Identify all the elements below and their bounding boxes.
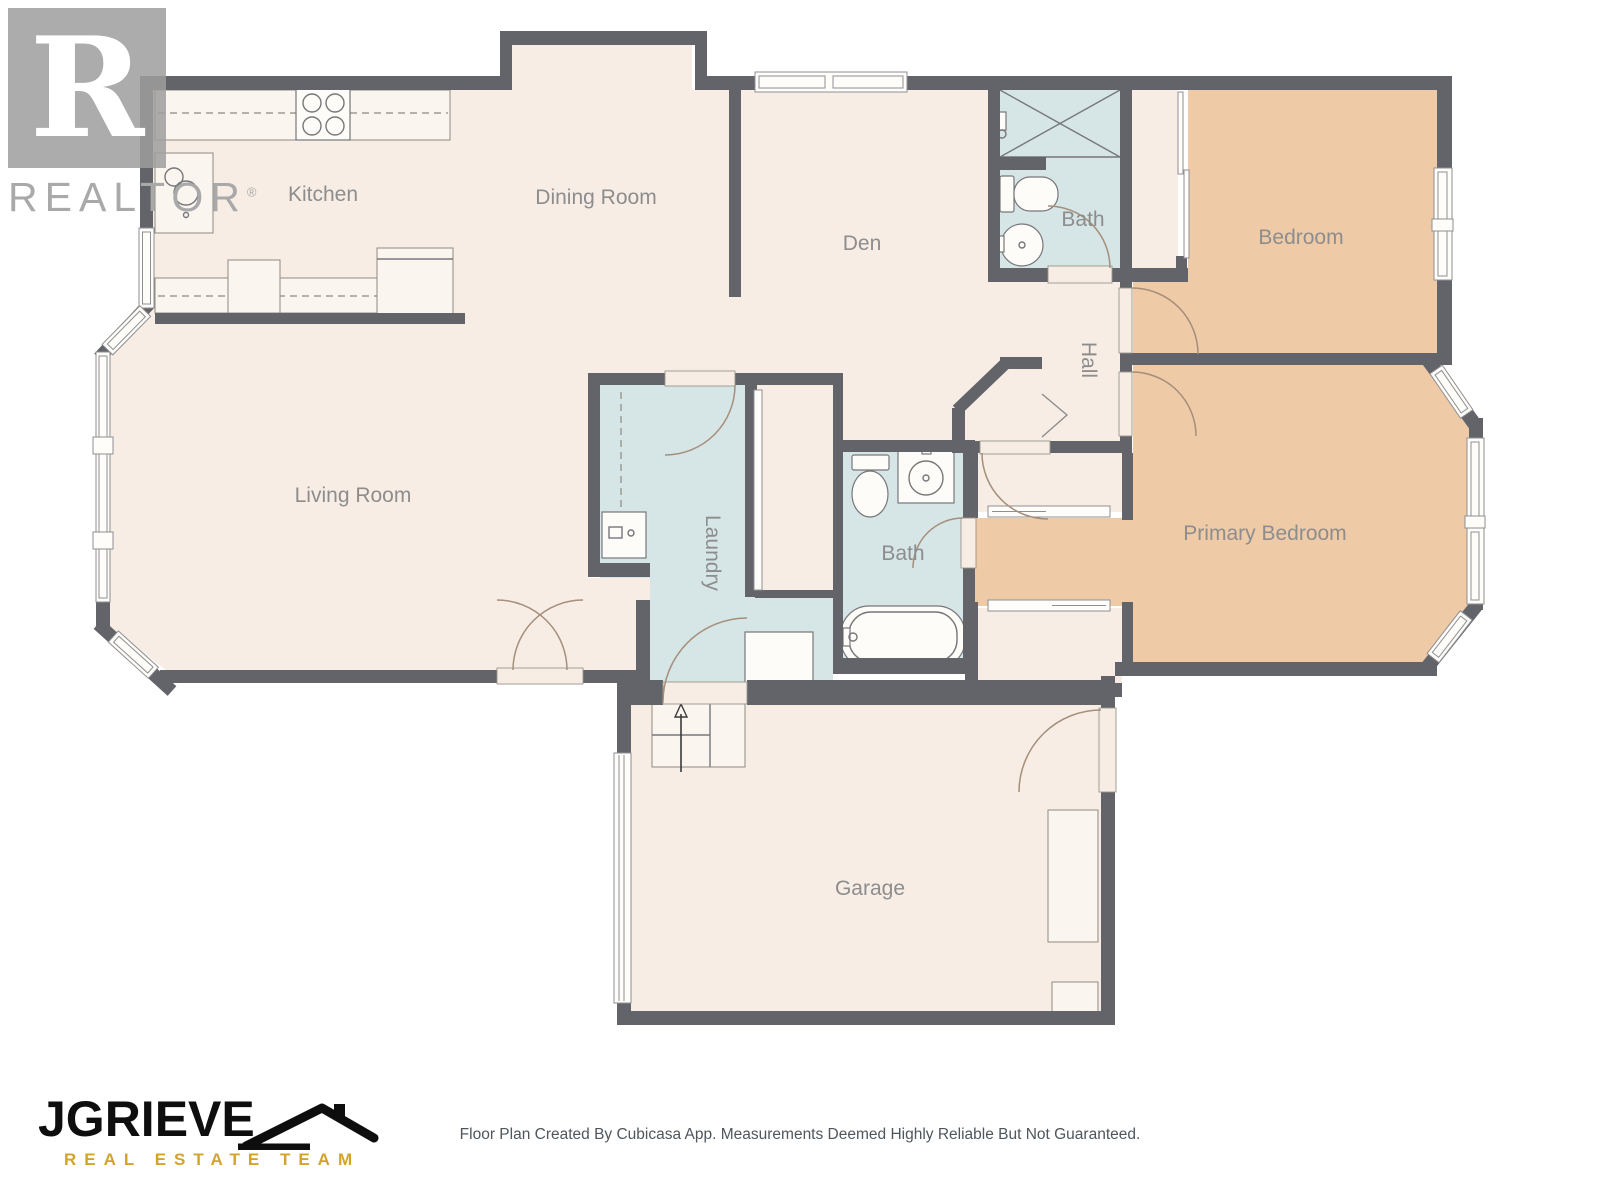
window-living-left <box>93 352 113 602</box>
stove-icon <box>296 88 350 140</box>
bedroom-closet-slider <box>1184 170 1189 258</box>
window-den-top <box>755 72 907 92</box>
bedroom-closet-floor <box>1132 90 1178 270</box>
primary-corridor-floor <box>975 518 1133 606</box>
laundry-garage-door-sill <box>663 682 747 704</box>
garage-side-door-sill <box>1099 708 1116 792</box>
bedroom-door-sill <box>1119 288 1132 353</box>
garage-shelf <box>1048 810 1098 942</box>
laundry-top-door-sill <box>665 371 735 386</box>
room-label-garage: Garage <box>835 877 905 900</box>
room-label-primary-bedroom: Primary Bedroom <box>1183 522 1346 545</box>
realtor-logo: R REALTOR® <box>8 8 208 221</box>
kitchen-island-box <box>228 260 280 313</box>
primary-door-sill <box>1119 372 1132 436</box>
room-label-living-room: Living Room <box>295 484 412 507</box>
realtor-wordmark-text: REALTOR <box>8 174 247 220</box>
room-label-den: Den <box>843 232 882 255</box>
stairs-icon <box>652 703 745 772</box>
disclaimer-text: Floor Plan Created By Cubicasa App. Meas… <box>0 1126 1600 1144</box>
window-kitchen-left <box>139 228 154 308</box>
window-bedroom-right <box>1432 168 1453 280</box>
fridge-icon <box>377 248 453 314</box>
hall-closet-slider <box>754 390 762 590</box>
room-label-dining-room: Dining Room <box>535 186 656 209</box>
room-label-kitchen: Kitchen <box>288 183 358 206</box>
bath-upper-door-sill <box>1048 266 1112 283</box>
realtor-logo-square: R <box>8 8 166 168</box>
front-door-sill <box>497 668 583 684</box>
closet-door-sill <box>980 441 1050 454</box>
room-label-bedroom: Bedroom <box>1258 226 1343 249</box>
room-label-bath-main: Bath <box>881 542 924 565</box>
team-logo-tagline: REAL ESTATE TEAM <box>64 1150 398 1170</box>
primary-bedroom-floor <box>1133 365 1470 662</box>
realtor-logo-letter: R <box>30 19 145 157</box>
floor-plan-page: Kitchen Dining Room Den Bath Bedroom Hal… <box>0 0 1600 1200</box>
realtor-logo-wordmark: REALTOR® <box>8 174 208 221</box>
window-primary-bay-right <box>1465 438 1485 604</box>
dining-nook-floor <box>512 45 692 95</box>
registered-trademark-icon: ® <box>247 184 257 199</box>
garage-door <box>614 753 631 1003</box>
washer-icon <box>602 512 646 558</box>
sink-icon-main <box>898 446 954 503</box>
hall-floor <box>975 280 1132 441</box>
room-label-hall: Hall <box>1077 342 1100 378</box>
bath-main-door-sill <box>961 518 976 568</box>
closet-top-floor <box>978 452 1122 512</box>
toilet-icon-main <box>852 455 889 517</box>
hall-closet-strip-floor <box>757 385 833 595</box>
room-label-laundry: Laundry <box>701 515 724 591</box>
room-label-bath-upper: Bath <box>1061 208 1104 231</box>
garage-box <box>1052 982 1098 1012</box>
bedroom-closet-slider <box>1178 92 1183 174</box>
